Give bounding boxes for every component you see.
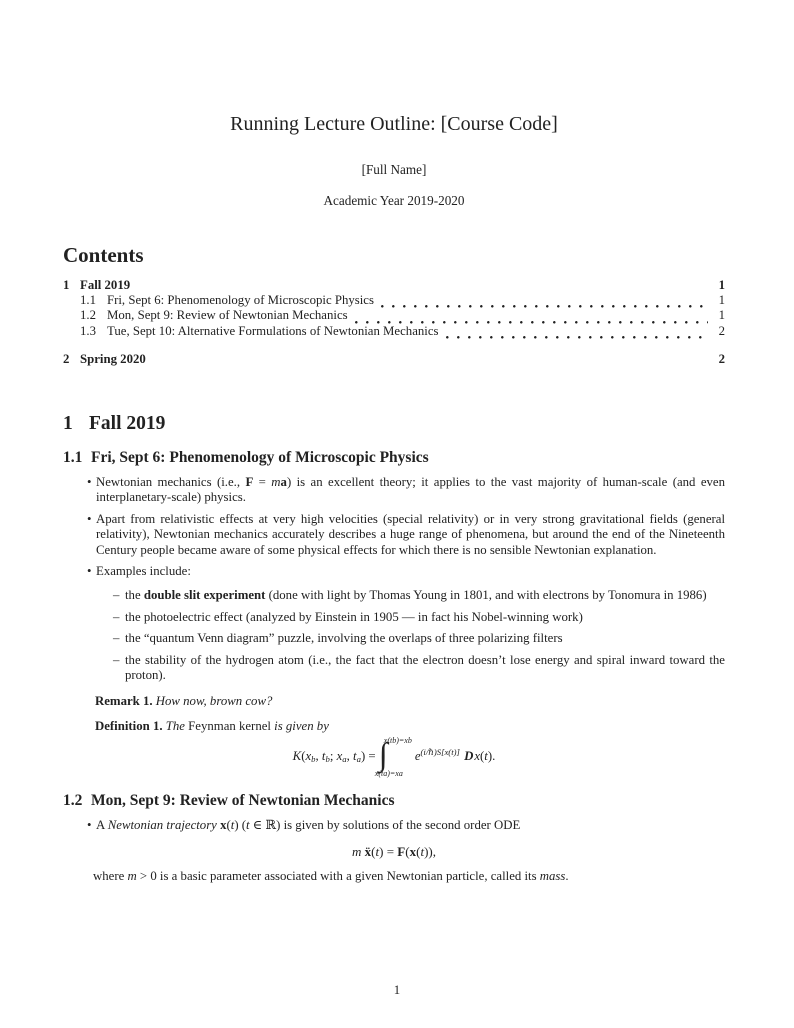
toc-dot-leader bbox=[153, 356, 708, 367]
bullet-item: • Apart from relativistic effects at ver… bbox=[87, 512, 725, 558]
toc-entry-label: Tue, Sept 10: Alternative Formulations o… bbox=[107, 324, 439, 339]
paragraph-newtonian-mechanics: Newtonian mechanics (i.e., F = ma) is an… bbox=[96, 475, 725, 506]
toc-entry-page: 2 bbox=[711, 324, 725, 339]
toc-entry-label: Fri, Sept 6: Phenomenology of Microscopi… bbox=[107, 293, 374, 308]
toc-entry-1-1[interactable]: 1.1 Fri, Sept 6: Phenomenology of Micros… bbox=[63, 293, 725, 308]
dash-list-examples: – the double slit experiment (done with … bbox=[113, 588, 725, 683]
toc-entry-number: 1.1 bbox=[80, 293, 107, 308]
doc-author: [Full Name] bbox=[63, 161, 725, 178]
bullet-item: • Examples include: bbox=[87, 564, 725, 579]
paragraph-examples-include: Examples include: bbox=[96, 564, 725, 579]
toc-dot-leader bbox=[381, 297, 708, 308]
remark-1: Remark 1. How now, brown cow? bbox=[95, 694, 725, 709]
doc-title: Running Lecture Outline: [Course Code] bbox=[63, 112, 725, 137]
doc-date: Academic Year 2019-2020 bbox=[63, 192, 725, 209]
toc-entry-label: Mon, Sept 9: Review of Newtonian Mechani… bbox=[107, 308, 348, 323]
dash-marker: – bbox=[113, 631, 125, 646]
paragraph-photoelectric: the photoelectric effect (analyzed by Ei… bbox=[125, 610, 725, 625]
toc-entry-number: 1 bbox=[63, 278, 80, 293]
toc-entry-page: 1 bbox=[711, 308, 725, 323]
bullet-list-1-1: • Newtonian mechanics (i.e., F = ma) is … bbox=[87, 475, 725, 579]
toc-entry-page: 1 bbox=[711, 293, 725, 308]
dash-marker: – bbox=[113, 588, 125, 603]
toc-entry-page: 1 bbox=[711, 278, 725, 293]
paragraph-newtonian-trajectory: A Newtonian trajectory x(t) (t ∈ ℝ) is g… bbox=[96, 818, 725, 833]
contents-heading: Contents bbox=[63, 243, 725, 268]
toc-entry-label: Fall 2019 bbox=[80, 278, 130, 293]
bullet-list-1-2: • A Newtonian trajectory x(t) (t ∈ ℝ) is… bbox=[87, 818, 725, 833]
subsection-heading-1-2: 1.2 Mon, Sept 9: Review of Newtonian Mec… bbox=[63, 791, 725, 810]
bullet-marker: • bbox=[87, 475, 96, 506]
dash-marker: – bbox=[113, 610, 125, 625]
subsection-title: Fri, Sept 6: Phenomenology of Microscopi… bbox=[91, 448, 429, 467]
paragraph-relativistic-effects: Apart from relativistic effects at very … bbox=[96, 512, 725, 558]
toc-entry-number: 1.2 bbox=[80, 308, 107, 323]
list-item: – the photoelectric effect (analyzed by … bbox=[113, 610, 725, 625]
list-item: – the stability of the hydrogen atom (i.… bbox=[113, 653, 725, 684]
paragraph-quantum-venn: the “quantum Venn diagram” puzzle, invol… bbox=[125, 631, 725, 646]
toc-entry-number: 1.3 bbox=[80, 324, 107, 339]
bullet-item: • Newtonian mechanics (i.e., F = ma) is … bbox=[87, 475, 725, 506]
bullet-marker: • bbox=[87, 512, 96, 558]
paragraph-hydrogen-atom: the stability of the hydrogen atom (i.e.… bbox=[125, 653, 725, 684]
subsection-heading-1-1: 1.1 Fri, Sept 6: Phenomenology of Micros… bbox=[63, 448, 725, 467]
dash-marker: – bbox=[113, 653, 125, 684]
paragraph-double-slit: the double slit experiment (done with li… bbox=[125, 588, 725, 603]
subsection-number: 1.2 bbox=[63, 791, 91, 810]
section-heading-fall-2019: 1 Fall 2019 bbox=[63, 411, 725, 436]
toc-entry-spring-2020[interactable]: 2 Spring 2020 2 bbox=[63, 352, 725, 367]
equation-newton-ode: m ẍ(t) = F(x(t)), bbox=[63, 844, 725, 859]
list-item: – the double slit experiment (done with … bbox=[113, 588, 725, 603]
toc-entry-fall-2019[interactable]: 1 Fall 2019 1 bbox=[63, 278, 725, 293]
toc-dot-leader bbox=[137, 282, 708, 293]
toc-entry-label: Spring 2020 bbox=[80, 352, 146, 367]
document-page: Running Lecture Outline: [Course Code] [… bbox=[0, 0, 794, 1028]
subsection-number: 1.1 bbox=[63, 448, 91, 467]
toc-entry-page: 2 bbox=[711, 352, 725, 367]
toc-entry-number: 2 bbox=[63, 352, 80, 367]
bullet-marker: • bbox=[87, 818, 96, 833]
table-of-contents: 1 Fall 2019 1 1.1 Fri, Sept 6: Phenomeno… bbox=[63, 278, 725, 367]
toc-dot-leader bbox=[446, 328, 709, 339]
paragraph-mass-note: where m > 0 is a basic parameter associa… bbox=[93, 869, 725, 884]
equation-feynman-kernel: K(xb, tb; xa, ta) = ∫x(tb)=xbx(ta)=xae(i… bbox=[63, 736, 725, 778]
list-item: – the “quantum Venn diagram” puzzle, inv… bbox=[113, 631, 725, 646]
subsection-title: Mon, Sept 9: Review of Newtonian Mechani… bbox=[91, 791, 395, 810]
bullet-item: • A Newtonian trajectory x(t) (t ∈ ℝ) is… bbox=[87, 818, 725, 833]
section-title: Fall 2019 bbox=[89, 411, 165, 436]
toc-entry-1-2[interactable]: 1.2 Mon, Sept 9: Review of Newtonian Mec… bbox=[63, 308, 725, 323]
section-number: 1 bbox=[63, 411, 89, 436]
bullet-marker: • bbox=[87, 564, 96, 579]
toc-dot-leader bbox=[355, 313, 708, 324]
definition-1: Definition 1. The Feynman kernel is give… bbox=[95, 719, 725, 734]
page-number: 1 bbox=[0, 983, 794, 998]
toc-entry-1-3[interactable]: 1.3 Tue, Sept 10: Alternative Formulatio… bbox=[63, 324, 725, 339]
